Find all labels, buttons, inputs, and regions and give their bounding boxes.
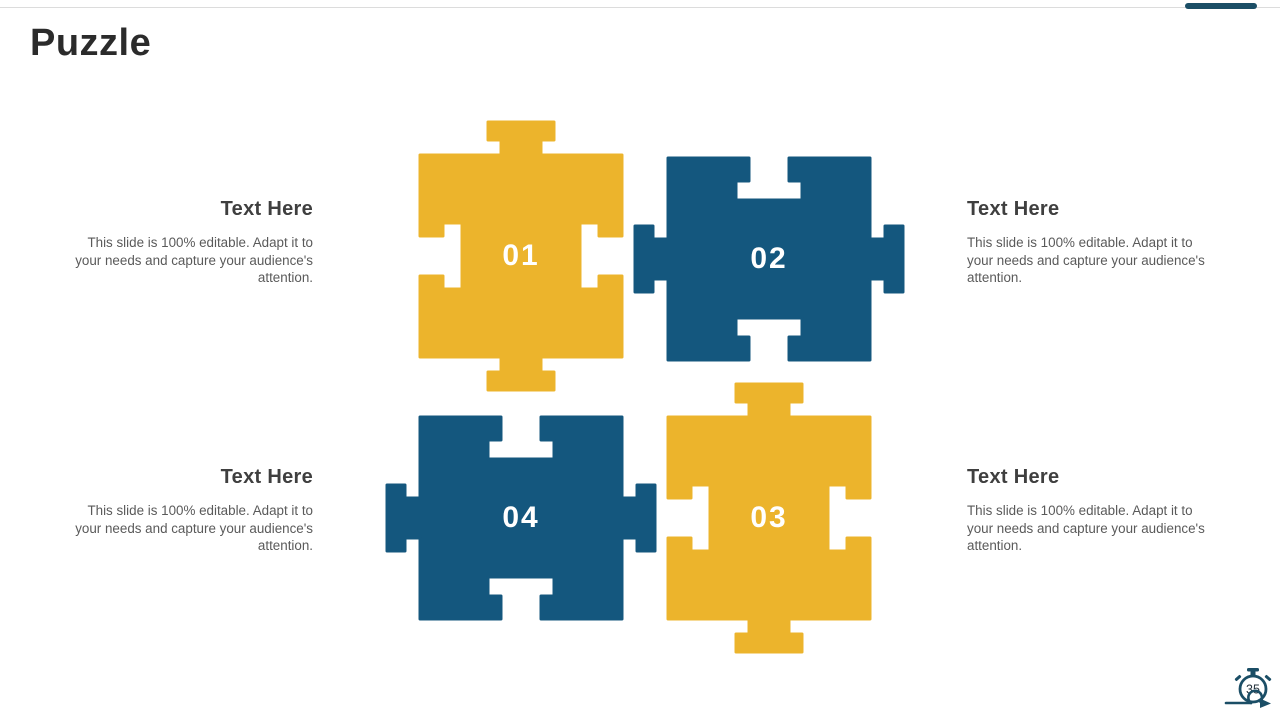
text-block-top-right: Text Here This slide is 100% editable. A…: [967, 198, 1207, 287]
text-block-heading: Text Here: [967, 466, 1207, 488]
stopwatch-cap: [1247, 668, 1259, 672]
text-block-body: This slide is 100% editable. Adapt it to…: [967, 234, 1207, 287]
stopwatch-right-lug: [1264, 675, 1271, 682]
text-block-body: This slide is 100% editable. Adapt it to…: [59, 234, 313, 287]
text-block-heading: Text Here: [59, 466, 313, 488]
piece-number-03: 03: [719, 498, 819, 538]
stopwatch-icon: 35: [1224, 662, 1280, 718]
text-block-body: This slide is 100% editable. Adapt it to…: [967, 502, 1207, 555]
slide-title: Puzzle: [30, 22, 151, 65]
text-block-bottom-left: Text Here This slide is 100% editable. A…: [59, 466, 313, 555]
text-block-heading: Text Here: [59, 198, 313, 220]
arrow-head: [1260, 699, 1271, 709]
puzzle-graphic: [370, 105, 915, 665]
text-block-top-left: Text Here This slide is 100% editable. A…: [59, 198, 313, 287]
piece-number-01: 01: [471, 236, 571, 276]
piece-number-04: 04: [471, 498, 571, 538]
piece-number-02: 02: [719, 239, 819, 279]
text-block-bottom-right: Text Here This slide is 100% editable. A…: [967, 466, 1207, 555]
top-accent-bar: [1185, 3, 1257, 9]
stopwatch-left-lug: [1234, 675, 1241, 682]
presentation-slide: Puzzle Text Here This slide is 100% edit…: [0, 0, 1280, 720]
text-block-body: This slide is 100% editable. Adapt it to…: [59, 502, 313, 555]
text-block-heading: Text Here: [967, 198, 1207, 220]
top-divider-line: [0, 7, 1280, 8]
